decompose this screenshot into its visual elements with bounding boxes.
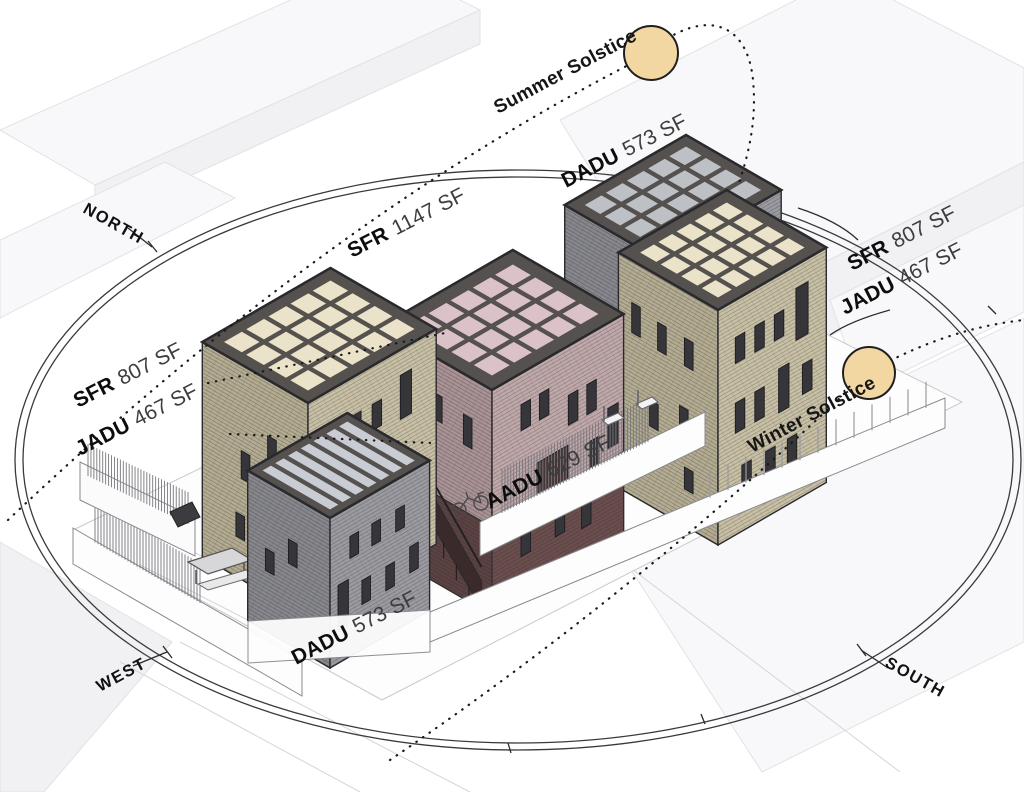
window <box>779 363 789 413</box>
window <box>521 399 531 431</box>
window <box>684 338 693 371</box>
window <box>288 539 297 568</box>
window <box>684 467 693 494</box>
window <box>410 542 419 573</box>
window <box>735 398 745 434</box>
context-block <box>0 162 235 318</box>
window <box>802 359 812 395</box>
ring-tick <box>508 743 511 753</box>
window <box>362 576 371 605</box>
window <box>236 512 245 541</box>
window <box>755 321 765 353</box>
window <box>396 505 405 532</box>
window <box>400 369 411 420</box>
window <box>632 302 641 337</box>
window <box>539 389 549 421</box>
window <box>568 390 578 426</box>
window <box>755 387 765 423</box>
site-diagram: DADU573 SF SFR1147 SF SFR807 SF JADU467 … <box>0 0 1024 792</box>
window <box>658 322 667 355</box>
window <box>463 414 472 449</box>
axonometric-scene: DADU573 SF SFR1147 SF SFR807 SF JADU467 … <box>0 0 1024 792</box>
window <box>372 519 381 546</box>
window <box>735 332 745 364</box>
context-block <box>0 0 480 185</box>
window <box>386 562 395 591</box>
window <box>350 532 359 559</box>
window <box>774 310 784 342</box>
label-sfr-main: SFR1147 SF <box>344 183 469 262</box>
window <box>372 399 382 431</box>
window <box>265 548 274 575</box>
window <box>796 282 808 341</box>
window <box>587 379 597 415</box>
ring-tick <box>148 241 157 252</box>
